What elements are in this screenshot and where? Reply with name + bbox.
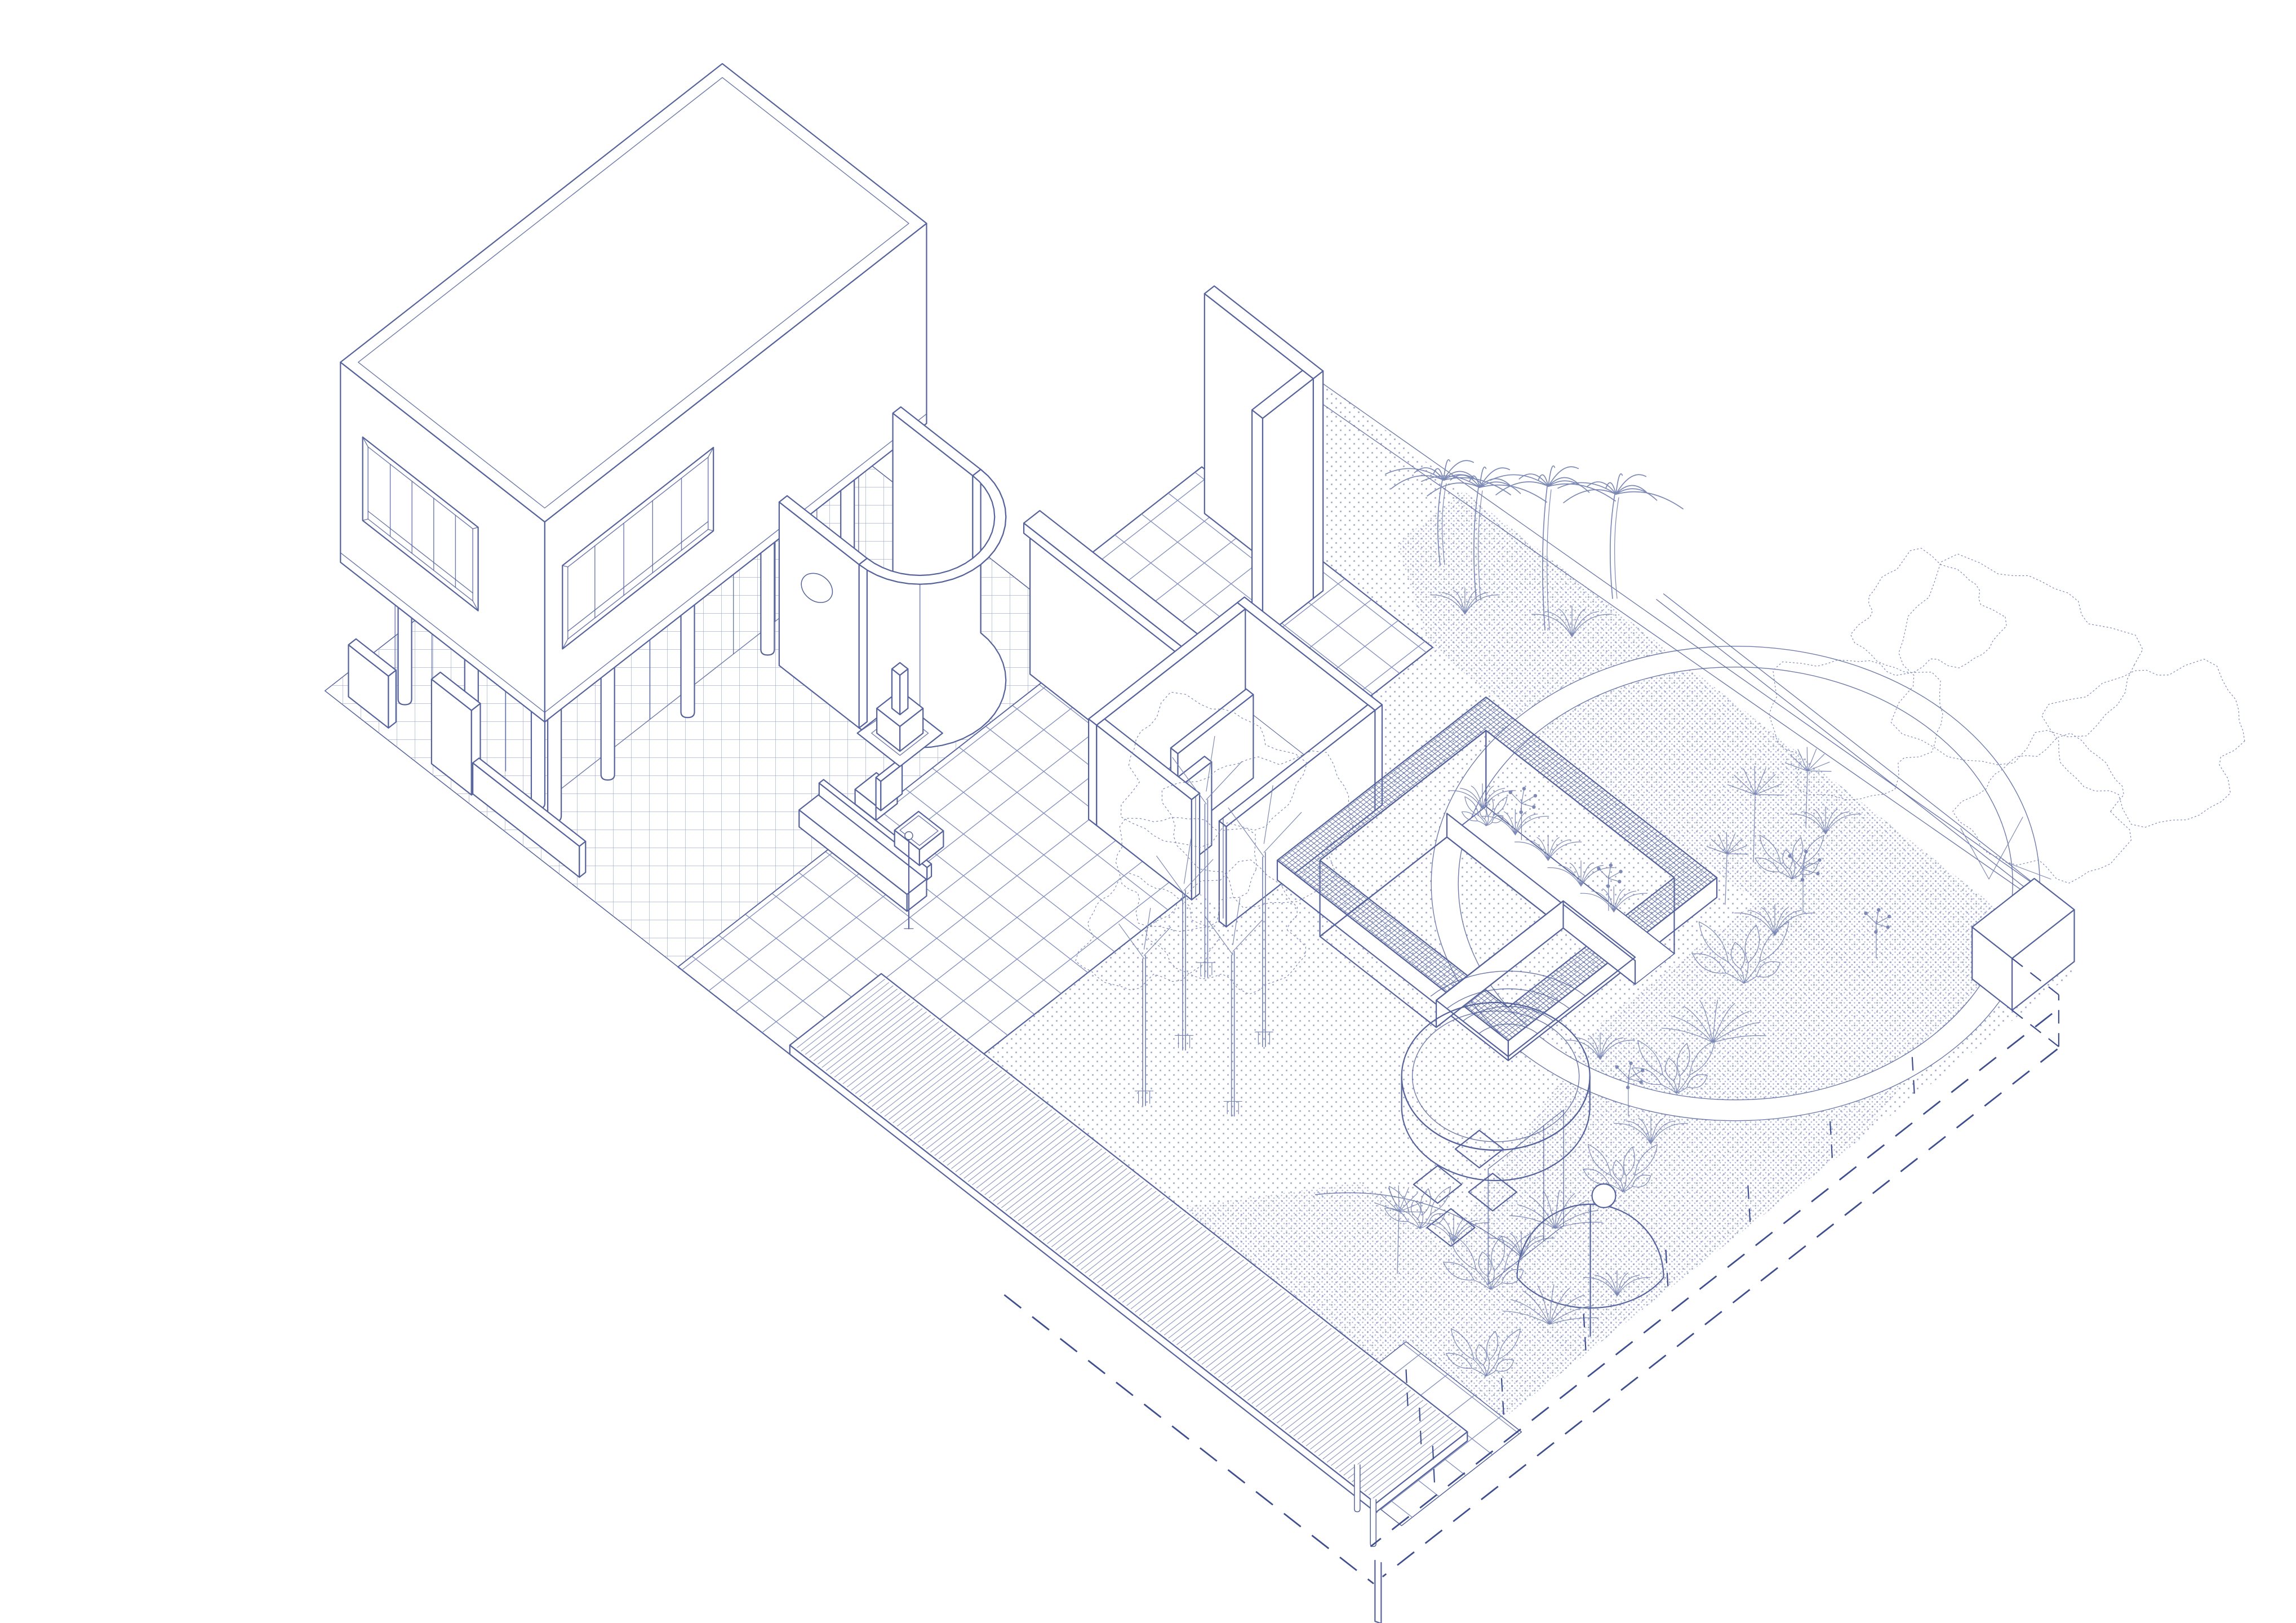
drawing-canvas [0, 0, 2296, 1623]
axonometric-site-drawing [0, 0, 2296, 1623]
